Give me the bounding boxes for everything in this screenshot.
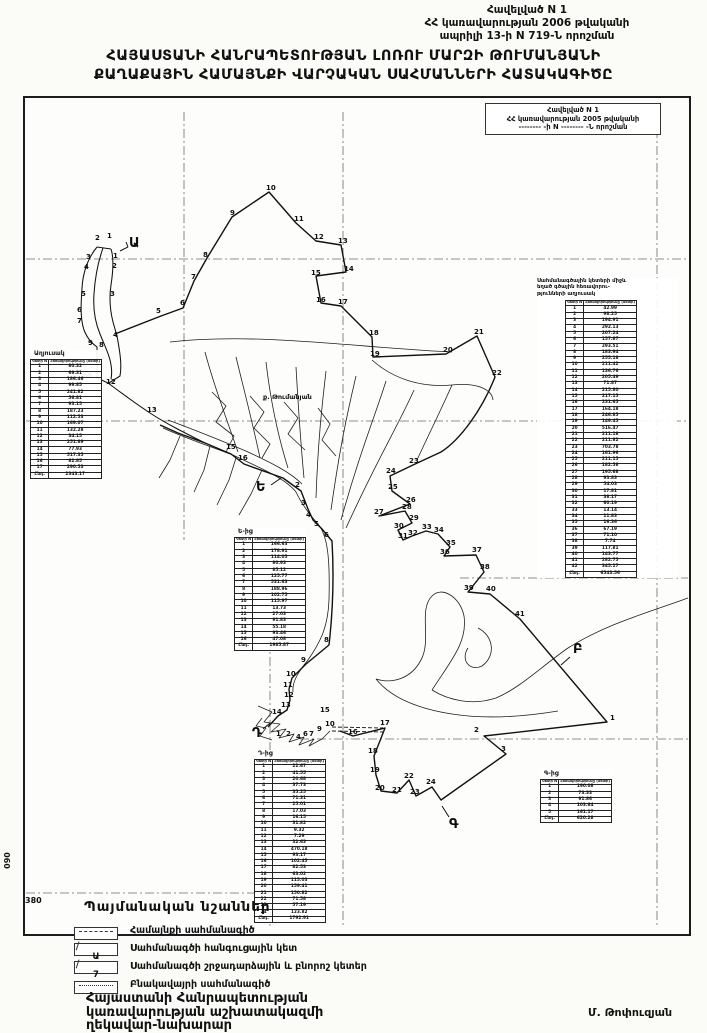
table-label: Դ-ից [258,750,326,757]
legend-item-junction-point: Ա Սահմանագծի հանգուցային կետ [74,943,118,957]
map-point-number: 12 [106,378,116,386]
map-point-number: 39 [464,584,474,592]
map-point-number: 6 [324,531,329,539]
table-label: Աղյուսակ [34,350,102,357]
table-body: Կետի NՀեռավորությունը (մետր)1166.632178.… [234,537,306,651]
map-point-number: 25 [388,483,398,491]
map-point-number: 3 [301,499,306,507]
map-point-number: 38 [480,563,490,571]
authority-line1: Հայաստանի Հանրապետության [86,992,323,1006]
map-point-number: 6 [77,306,82,314]
map-appendix-line2: ՀՀ կառավարության 2005 թվականի [487,115,659,124]
appendix-line3: ապրիլի 13-ի N 719-Ն որոշման [357,30,697,43]
map-junction-letter: Դ [252,726,262,741]
map-point-number: 9 [317,725,322,733]
title-line2: ՔԱՂԱՔԱՅԻՆ ՀԱՄԱՅՆՔԻ ՎԱՐՉԱԿԱՆ ՍԱՀՄԱՆՆԵՐԻ Հ… [0,66,707,85]
page-title: ՀԱՅԱՍՏԱՆԻ ՀԱՆՐԱՊԵՏՈՒԹՅԱՆ ԼՈՌՈՒ ՄԱՐԶԻ ԹՈՒ… [0,47,707,85]
map-point-number: 37 [472,546,482,554]
map-point-number: 13 [338,237,348,245]
table-header-note: Սահմանագծային կետերի միջև եղած գծային հե… [537,278,677,297]
distance-table-left: Աղյուսակ Կետի NՀեռավորությունը (մետր)180… [30,350,102,479]
map-point-number: 1 [113,252,118,260]
map-labels: 2134123567456789101198101213151612131415… [77,184,615,832]
map-junction-letter: Ե [256,480,265,495]
signature-name: Մ. Թոփուզյան [588,1006,672,1019]
map-point-number: 9 [88,339,93,347]
map-point-number: 16 [316,296,326,304]
table-body: Կետի NՀեռավորությունը (մետր)180.32269.31… [30,359,102,479]
map-point-number: 41 [515,610,525,618]
distance-table: Կետի NՀեռավորությունը (մետր)180.32269.31… [30,359,102,479]
map-point-number: 17 [338,298,348,306]
table-body: Կետի NՀեռավորությունը (մետր)142.99298.25… [565,300,677,578]
distance-table: Կետի NՀեռավորությունը (մետր)1190.08273.3… [540,779,612,823]
legend-item-label: Համայնքի սահմանագիծ [130,925,255,936]
map-point-number: 7 [191,273,196,281]
map-point-number: 13 [281,701,291,709]
map-point-number: 17 [380,719,390,727]
map-point-number: 21 [474,328,484,336]
map-point-number: 2 [295,481,300,489]
map-point-number: 16 [238,454,248,462]
map-point-number: 1 [107,232,112,240]
map-point-number: 5 [314,520,319,528]
map-point-number: 15 [226,443,236,451]
map-point-number: 4 [296,733,301,741]
map-point-number: 2 [286,730,291,738]
map-point-number: 10 [286,670,296,678]
map-point-number: 34 [434,526,444,534]
map-point-number: 8 [324,636,329,644]
appendix-reference: Հավելված N 1 ՀՀ կառավարության 2006 թվակա… [357,4,697,43]
community-boundary [81,192,607,817]
scanned-boundary-plan-page: { "page": { "appendix": { "line1": "Հավե… [0,0,707,1033]
authority-line2: կառավարության աշխատակազմի [86,1006,323,1020]
map-point-number: 8 [99,341,104,349]
map-point-number: 12 [284,691,294,699]
map-point-number: 21 [392,786,402,794]
appendix-line2: ՀՀ կառավարության 2006 թվականի [357,17,697,30]
map-point-number: 16 [348,728,358,736]
map-point-number: 4 [84,263,89,271]
authority-line3: ղեկավար-նախարար [86,1019,323,1033]
map-point-number: 9 [301,656,306,664]
map-point-number: 24 [386,467,396,475]
grid-coordinate-bottom: 380 [25,896,42,905]
map-appendix-line1: Հավելված N 1 [487,106,659,115]
table-body: Կետի NՀեռավորությունը (մետր)1190.08273.3… [540,779,612,823]
map-point-number: 29 [409,514,419,522]
legend-title: Պայմանական նշաններ [84,899,271,915]
map-point-number: 28 [402,503,412,511]
distance-table-small: Գ-ից Կետի NՀեռավորությունը (մետր)1190.08… [540,770,612,823]
map-appendix-box: Հավելված N 1 ՀՀ կառավարության 2005 թվակա… [485,103,661,135]
grid-coordinate-left: 090 [3,852,12,869]
map-point-number: 7 [309,730,314,738]
map-point-number: 1 [610,714,615,722]
map-point-number: 2 [112,262,117,270]
map-junction-letter: Բ [573,642,582,657]
distance-table: Կետի NՀեռավորությունը (մետր)1166.632178.… [234,537,306,651]
map-point-number: 20 [443,346,453,354]
legend-item-label: Բնակավայրի սահմանագիծ [130,979,270,990]
map-point-number: 12 [314,233,324,241]
map-point-number: 11 [294,215,304,223]
map-point-number: 3 [110,290,115,298]
turning-point-icon: 7 [74,961,118,974]
legend-item-turning-point: 7 Սահմանագծի շրջադարձային և բնորոշ կետեր [74,961,118,975]
map-point-number: 24 [426,778,436,786]
legend-item-label: Սահմանագծի հանգուցային կետ [130,943,297,954]
community-boundary-line-icon [74,927,118,940]
map-point-number: 35 [446,539,456,547]
table-label: Ե-ից [238,528,306,535]
map-point-number: 31 [398,532,408,540]
map-point-number: 15 [320,706,330,714]
map-point-number: 19 [370,766,380,774]
map-point-number: 2 [95,234,100,242]
map-point-number: 4 [306,511,311,519]
map-point-number: 32 [408,529,418,537]
legend-item-community-boundary: Համայնքի սահմանագիծ [74,925,118,939]
map-point-number: 3 [501,745,506,753]
distance-table-right: Սահմանագծային կետերի միջև եղած գծային հե… [537,278,677,578]
legend-item-label: Սահմանագծի շրջադարձային և բնորոշ կետեր [130,961,367,972]
map-point-number: 10 [266,184,276,192]
map-point-number: 14 [272,708,282,716]
map-point-number: 7 [77,317,82,325]
map-point-number: 3 [86,253,91,261]
map-point-number: 1 [276,730,281,738]
map-point-number: 4 [113,331,118,339]
map-point-number: 30 [394,522,404,530]
map-junction-letter: Ա [129,236,140,251]
map-point-number: 2 [474,726,479,734]
map-point-number: 13 [147,406,157,414]
map-point-number: 14 [344,265,354,273]
map-point-number: 18 [368,747,378,755]
map-point-number: 23 [409,457,419,465]
map-point-number: 33 [422,523,432,531]
distance-table-bottom: Դ-ից Կետի NՀեռավորությունը (մետր)122.672… [254,750,326,923]
map-point-number: 27 [374,508,384,516]
junction-point-icon: Ա [74,943,118,956]
map-point-number: 8 [203,251,208,259]
note-line3: թյունների աղյուսակ [537,291,677,297]
map-point-number: 40 [486,585,496,593]
map-frame: 2134123567456789101198101213151612131415… [23,96,691,936]
map-point-number: 36 [440,548,450,556]
map-point-number: 5 [156,307,161,315]
map-appendix-line3: -------- -ի N -------- -Ն որոշման [487,123,659,132]
title-line1: ՀԱՅԱՍՏԱՆԻ ՀԱՆՐԱՊԵՏՈՒԹՅԱՆ ԼՈՌՈՒ ՄԱՐԶԻ ԹՈՒ… [0,47,707,66]
map-junction-letter: Գ [449,817,459,832]
map-place-label: ք. Թումանյան [262,393,312,401]
map-point-number: 6 [180,299,185,307]
map-point-number: 18 [369,329,379,337]
issuing-authority: Հայաստանի Հանրապետության կառավարության ա… [86,992,323,1033]
map-point-number: 9 [230,209,235,217]
map-point-number: 22 [404,772,414,780]
map-point-number: 6 [303,730,308,738]
table-label: Գ-ից [544,770,612,777]
map-point-number: 11 [283,681,293,689]
map-point-number: 5 [81,290,86,298]
map-point-number: 20 [375,784,385,792]
distance-table: Կետի NՀեռավորությունը (մետր)142.99298.25… [565,300,637,578]
distance-table-middle: Ե-ից Կետի NՀեռավորությունը (մետր)1166.63… [234,528,306,651]
map-point-number: 19 [370,350,380,358]
map-point-number: 22 [492,369,502,377]
appendix-line1: Հավելված N 1 [357,4,697,17]
map-point-number: 23 [410,788,420,796]
map-point-number: 15 [311,269,321,277]
map-point-number: 10 [325,720,335,728]
